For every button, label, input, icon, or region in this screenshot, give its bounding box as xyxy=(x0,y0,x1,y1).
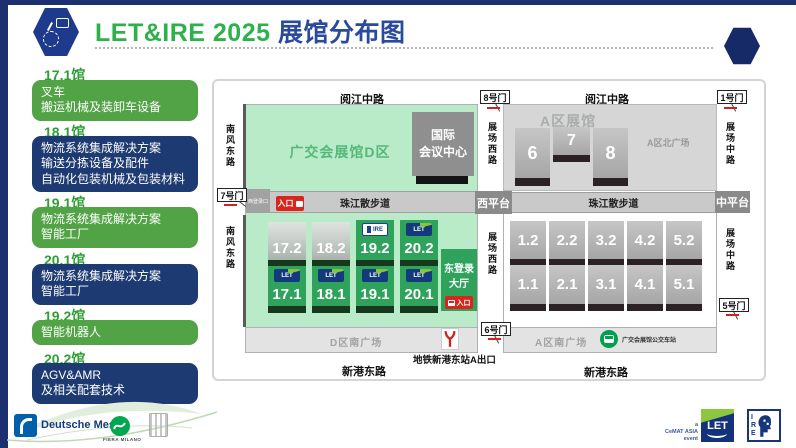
machine-icon xyxy=(56,18,69,28)
ire-logo-small-icon: IRE xyxy=(362,223,388,236)
road-zhanchang-zhong-bottom: 展场中路 xyxy=(724,228,737,272)
hall-number: 18.2 xyxy=(316,241,345,256)
legend-line: 智能工厂 xyxy=(41,284,189,299)
page-title: LET&IRE 2025 展馆分布图 xyxy=(95,13,405,49)
gate-6-tick xyxy=(488,338,501,340)
page-title-suffix: 展馆分布图 xyxy=(271,19,406,47)
hall-4-1: 4.1 xyxy=(627,265,663,304)
let-logo-small-icon: LET xyxy=(406,223,432,236)
ire-letter: E xyxy=(751,430,756,438)
gate-8-tick xyxy=(487,107,500,109)
event-hexagon-logo-icon xyxy=(33,7,79,57)
legend-line: 搬运机械及装卸车设备 xyxy=(41,100,189,115)
let-logo-text: LET xyxy=(707,420,728,432)
a-south-plaza-label: A区南广场 xyxy=(535,334,587,349)
let-logo-icon: LET xyxy=(701,409,734,442)
bus-station-label: 广交会展馆公交车站 xyxy=(622,335,676,344)
bus-body-icon xyxy=(604,335,614,343)
d-south-plaza-label: D区南广场 xyxy=(330,334,382,349)
let-logo-small-icon: LET xyxy=(362,269,388,282)
east-hall-entrance: 入口 xyxy=(445,296,473,309)
ire-head-profile-icon xyxy=(757,414,772,438)
west-platform: 西平台 xyxy=(475,191,512,214)
hall-base xyxy=(515,178,550,186)
venue-map-poster: LET&IRE 2025 展馆分布图 17.1馆 叉车 搬运机械及装卸车设备 1… xyxy=(0,0,796,448)
legend-box-17-1: 叉车 搬运机械及装卸车设备 xyxy=(32,80,198,121)
legend-box-20-1: 物流系统集成解决方案 智能工厂 xyxy=(32,264,198,305)
legend-box-19-2: 智能机器人 xyxy=(32,320,198,345)
bus-icon xyxy=(600,330,618,348)
road-zhanchang-xi-top: 展场西路 xyxy=(486,122,499,166)
cemat-line: a xyxy=(640,422,698,429)
convention-center: 国际 会议中心 xyxy=(412,112,474,176)
hall-number: 2.2 xyxy=(557,232,578,249)
legend-line: 智能工厂 xyxy=(41,227,189,242)
deutsche-messe-icon xyxy=(14,414,37,437)
hall-19-2: IRE 19.2 xyxy=(356,220,394,260)
hall-number: 3.2 xyxy=(596,232,617,249)
entrance-label: 入口 xyxy=(457,298,471,308)
gate-7-tick xyxy=(224,204,237,206)
hall-8: 8 xyxy=(593,128,628,178)
hall-number: 5.1 xyxy=(674,276,695,293)
road-zhanchang-xi-bottom: 展场西路 xyxy=(486,232,499,276)
east-login-hall-label: 东登录 xyxy=(444,262,474,277)
east-login-hall-label: 大厅 xyxy=(449,277,469,292)
hall-2-2: 2.2 xyxy=(549,221,585,259)
metro-logo-icon xyxy=(441,328,459,350)
hall-base xyxy=(627,304,663,311)
legend-box-18-1: 物流系统集成解决方案 输送分拣设备及配件 自动化包装机械及包装材料 xyxy=(32,136,198,192)
mid-platform: 中平台 xyxy=(715,191,750,213)
hall-4-2: 4.2 xyxy=(627,221,663,259)
hall-5-2: 5.2 xyxy=(666,221,702,259)
hall-number: 20.2 xyxy=(404,241,433,256)
legend-line: 输送分拣设备及配件 xyxy=(41,156,189,171)
let-logo-small-icon: LET xyxy=(406,269,432,282)
gate-1: 1号门 xyxy=(717,90,747,104)
ire-logo-icon: I R E xyxy=(747,409,781,442)
hall-20-1: LET 20.1 xyxy=(400,266,438,306)
hall-number: 18.1 xyxy=(316,287,345,302)
hall-number: 3.1 xyxy=(596,276,617,293)
convention-center-label: 会议中心 xyxy=(419,144,467,161)
hall-base xyxy=(549,304,585,311)
hall-1-2: 1.2 xyxy=(510,221,546,259)
left-accent-bar xyxy=(0,0,8,448)
hall-base xyxy=(593,178,628,186)
hall-1-1: 1.1 xyxy=(510,265,546,304)
zhujiang-promenade-east: 珠江散步道 xyxy=(511,192,716,213)
legend-line: 叉车 xyxy=(41,85,189,100)
hall-base xyxy=(356,306,394,313)
hall-number: 8 xyxy=(605,143,615,164)
cemat-line: CeMAT ASIA xyxy=(640,429,698,436)
page-title-event: LET&IRE 2025 xyxy=(95,19,271,47)
hall-base xyxy=(312,306,350,313)
legend-line: 智能机器人 xyxy=(41,325,189,340)
hall-base xyxy=(268,306,306,313)
hall-number: 4.1 xyxy=(635,276,656,293)
legend-line: 物流系统集成解决方案 xyxy=(41,212,189,227)
hall-number: 2.1 xyxy=(557,276,578,293)
let-logo-small-icon: LET xyxy=(318,269,344,282)
d-zone-west-wall xyxy=(243,104,246,188)
hall-number: 20.1 xyxy=(404,287,433,302)
top-accent-bar xyxy=(0,0,796,5)
ire-head-icon xyxy=(367,226,371,233)
legend-line: 自动化包装机械及包装材料 xyxy=(41,172,189,187)
hall-base xyxy=(400,306,438,313)
ire-logo-text: IRE xyxy=(373,227,383,233)
hall-number: 17.2 xyxy=(272,241,301,256)
entrance-badge: 入口 xyxy=(276,196,304,211)
hall-3-2: 3.2 xyxy=(588,221,624,259)
hall-6: 6 xyxy=(515,128,550,178)
d-zone-west-wall xyxy=(243,215,246,327)
convention-center-label: 国际 xyxy=(431,127,455,144)
hall-20-2: LET 20.2 xyxy=(400,220,438,260)
hall-base xyxy=(588,304,624,311)
hexagon-icon xyxy=(724,27,760,65)
convention-center-canopy xyxy=(416,176,468,184)
gate-5: 5号门 xyxy=(719,298,749,312)
gate-7: 7号门 xyxy=(217,188,247,202)
ire-letter: I xyxy=(751,414,756,422)
hall-number: 6 xyxy=(527,143,537,164)
west-login-entrance: 西登录口 xyxy=(246,189,270,213)
hall-base xyxy=(666,304,702,311)
road-nanfeng-top: 南风东路 xyxy=(224,124,237,168)
hall-18-2: 18.2 xyxy=(312,222,350,260)
hall-17-2: 17.2 xyxy=(268,222,306,260)
gate-6: 6号门 xyxy=(481,322,511,336)
road-zhanchang-zhong-top: 展场中路 xyxy=(724,122,737,166)
entrance-badge-icon xyxy=(296,201,303,207)
hall-base xyxy=(553,155,590,162)
gate-8: 8号门 xyxy=(480,90,510,104)
fiera-milano-label: FIERA MILANO xyxy=(103,437,141,442)
hall-number: 7 xyxy=(567,132,576,150)
cemat-line: event xyxy=(640,436,698,443)
gate-5-tick xyxy=(726,314,739,316)
seal-stamp-icon xyxy=(149,413,168,437)
gear-icon xyxy=(43,31,59,47)
legend-line: 物流系统集成解决方案 xyxy=(41,269,189,284)
hall-18-1: LET 18.1 xyxy=(312,266,350,306)
hall-base xyxy=(510,304,546,311)
hall-number: 1.1 xyxy=(518,276,539,293)
road-nanfeng-bottom: 南风东路 xyxy=(224,226,237,270)
hall-number: 5.2 xyxy=(674,232,695,249)
hall-7: 7 xyxy=(553,127,590,155)
hall-17-1: LET 17.1 xyxy=(268,266,306,306)
gate-1-tick xyxy=(724,107,737,109)
a-north-plaza-label: A区北广场 xyxy=(647,136,690,149)
robot-arm-icon xyxy=(47,22,53,31)
train-icon xyxy=(448,300,455,306)
hall-number: 1.2 xyxy=(518,232,539,249)
d-zone-title: 广交会展馆D区 xyxy=(283,142,397,162)
legend-line: AGV&AMR xyxy=(41,368,189,383)
legend-box-19-1: 物流系统集成解决方案 智能工厂 xyxy=(32,207,198,248)
fiera-milano-icon xyxy=(110,416,130,436)
hall-number: 4.2 xyxy=(635,232,656,249)
ire-letter: R xyxy=(751,422,756,430)
metro-exit-label: 地铁新港东站A出口 xyxy=(413,352,496,366)
hall-3-1: 3.1 xyxy=(588,265,624,304)
hall-number: 19.2 xyxy=(360,241,389,256)
legend-line: 物流系统集成解决方案 xyxy=(41,141,189,156)
hall-5-1: 5.1 xyxy=(666,265,702,304)
let-logo-small-icon: LET xyxy=(274,269,300,282)
header-divider xyxy=(95,47,713,49)
road-xingang-east: 新港东路 xyxy=(584,364,628,380)
entrance-label: 入口 xyxy=(278,198,294,209)
hall-number: 17.1 xyxy=(272,287,301,302)
hall-number: 19.1 xyxy=(360,287,389,302)
cemat-asia-note: a CeMAT ASIA event xyxy=(640,422,698,443)
road-xingang-west: 新港东路 xyxy=(342,363,386,379)
hall-19-1: LET 19.1 xyxy=(356,266,394,306)
hall-2-1: 2.1 xyxy=(549,265,585,304)
